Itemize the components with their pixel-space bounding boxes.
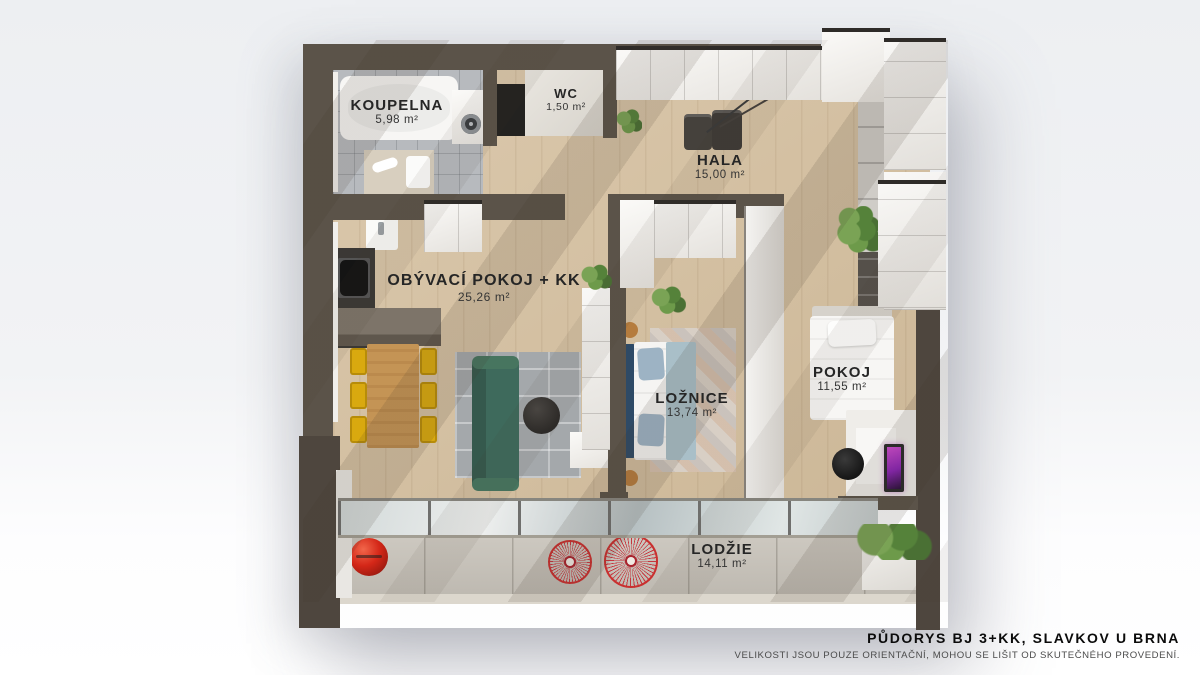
room-label-obyvaci-pokoj: OBÝVACÍ POKOJ + KK 25,26 m² [387, 272, 580, 304]
wall-left-bottom [299, 436, 340, 628]
tv [884, 444, 904, 492]
wall-inner-face-lower [333, 222, 338, 422]
bedroom-plant [650, 286, 686, 316]
plan-title: PŮDORYS BJ 3+KK, SLAVKOV U BRNA [867, 630, 1180, 646]
sofa [472, 356, 519, 491]
red-fan-decoration-1 [548, 540, 592, 584]
room-name: WC [546, 86, 586, 101]
dining-chair [420, 348, 437, 375]
bathroom-sink [406, 156, 430, 188]
dining-chair [420, 416, 437, 443]
desk-chair [832, 448, 864, 480]
room-area: 5,98 m² [351, 114, 444, 126]
kitchen-tall-cabinet [424, 200, 482, 252]
red-fan-decoration-2 [604, 534, 658, 588]
room-area: 1,50 m² [546, 101, 586, 113]
room-name: KOUPELNA [351, 97, 444, 114]
coffee-table [523, 397, 560, 434]
pokoj-wardrobe [878, 180, 946, 308]
dining-chair [350, 348, 367, 375]
wall-left [303, 44, 333, 436]
entry-cabinet [822, 28, 890, 102]
floorplan-stage: KOUPELNA 5,98 m² WC 1,50 m² HALA 15,00 m… [0, 0, 1200, 675]
room-label-koupelna: KOUPELNA 5,98 m² [351, 97, 444, 126]
wall-right [916, 298, 940, 630]
right-wardrobe-upper [884, 38, 946, 170]
bed-pillow-1 [637, 347, 665, 381]
sofa-backrest [472, 356, 486, 491]
room-label-lodzie: LODŽIE 14,11 m² [691, 541, 753, 570]
room-area: 11,55 m² [813, 381, 871, 393]
sliding-glass-doors [338, 498, 878, 538]
room-label-loznice: LOŽNICE 13,74 m² [655, 390, 729, 419]
red-kettle-grill [350, 538, 388, 576]
corridor-plant [834, 220, 884, 254]
glass-door-frames [338, 501, 878, 535]
dining-chair [350, 416, 367, 443]
bedroom-partition-wardrobe [744, 206, 784, 506]
room-label-hala: HALA 15,00 m² [695, 152, 745, 181]
sofa-armrest-bottom [472, 478, 519, 491]
living-shelf-column [582, 288, 610, 450]
room-area: 15,00 m² [695, 169, 745, 181]
wall-bathroom-right [483, 66, 497, 146]
dining-chair [350, 382, 367, 409]
sofa-armrest-top [472, 356, 519, 369]
living-plant [580, 264, 612, 292]
room-name: HALA [695, 152, 745, 169]
planter-greenery [850, 524, 934, 560]
room-name: LOŽNICE [655, 390, 729, 407]
room-label-wc: WC 1,50 m² [546, 86, 586, 113]
washing-machine-door [461, 114, 481, 134]
room-name: POKOJ [813, 364, 871, 381]
hala-plant [616, 108, 642, 136]
single-bed-pillow [827, 319, 876, 347]
bedroom-wardrobe-side [620, 200, 654, 288]
room-area: 13,74 m² [655, 407, 729, 419]
lodzie-front-edge [336, 594, 930, 604]
room-area: 14,11 m² [691, 558, 753, 570]
cooktop [338, 258, 370, 298]
tv-screen [887, 447, 901, 489]
room-label-pokoj: POKOJ 11,55 m² [813, 364, 871, 393]
kitchen-faucet [378, 222, 384, 235]
pokoj-shelf-interior [858, 252, 880, 314]
room-name: LODŽIE [691, 541, 753, 558]
room-area: 25,26 m² [387, 290, 580, 304]
room-name: OBÝVACÍ POKOJ + KK [387, 272, 580, 290]
plan-disclaimer: VELIKOSTI JSOU POUZE ORIENTAČNÍ, MOHOU S… [735, 650, 1180, 661]
dining-chair [420, 382, 437, 409]
dining-table [367, 344, 419, 448]
kitchen-peninsula [333, 308, 441, 346]
wall-inner-face-upper [333, 72, 338, 192]
hala-wardrobe [616, 46, 824, 100]
bathroom-doorway-shadow [497, 84, 525, 136]
wall-wc-right [603, 66, 617, 138]
